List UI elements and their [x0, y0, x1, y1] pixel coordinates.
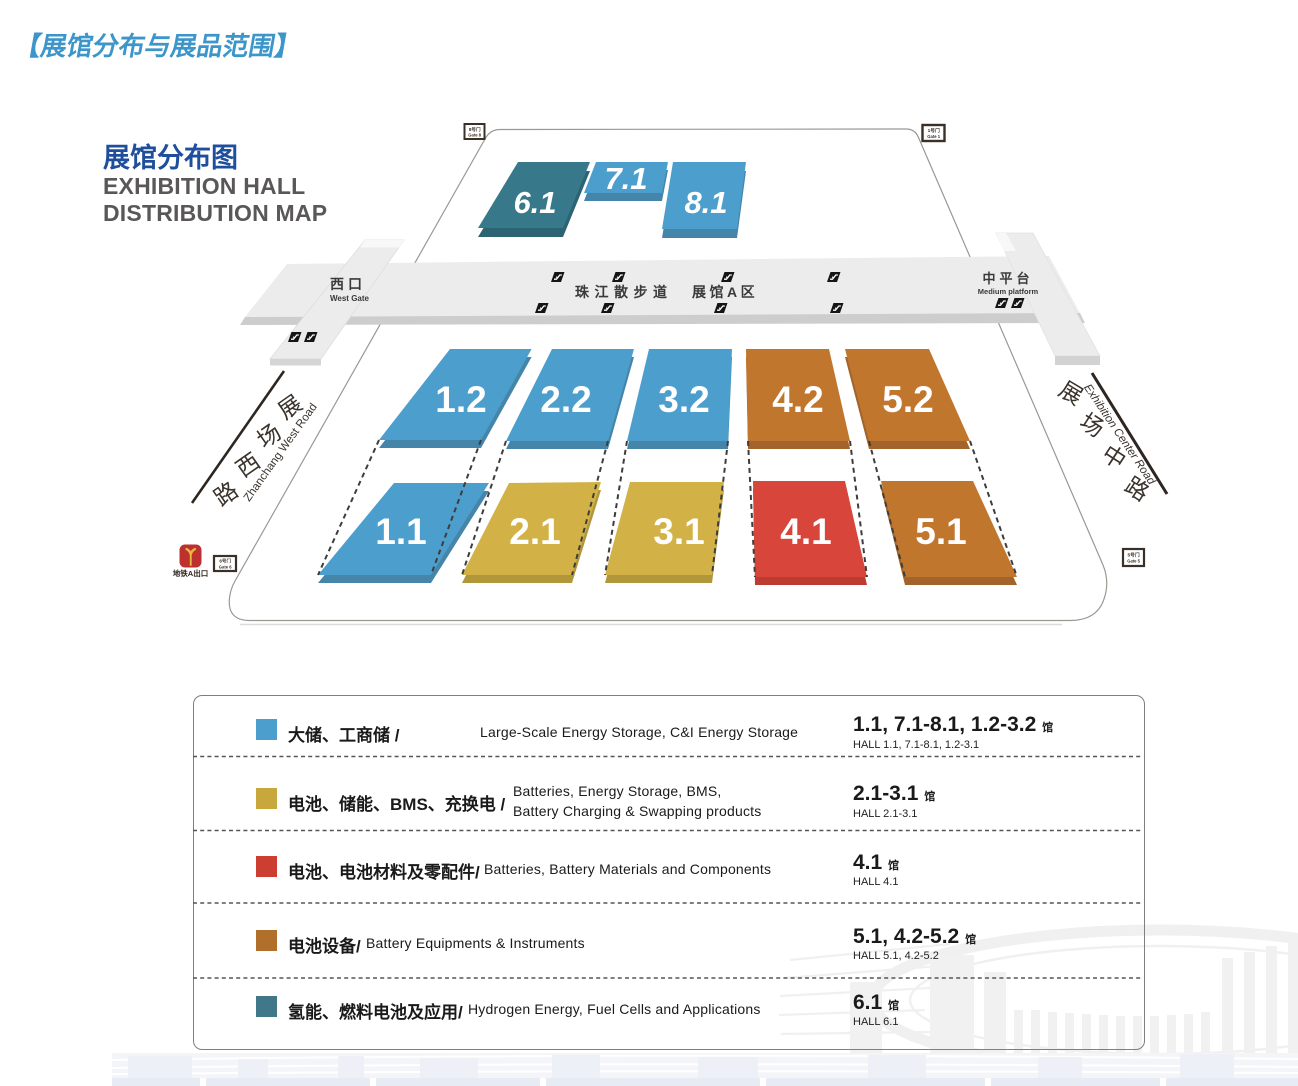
svg-text:地铁A出口: 地铁A出口: [173, 568, 208, 578]
svg-text:1.1: 1.1: [375, 511, 426, 552]
svg-text:7.1: 7.1: [604, 161, 647, 196]
svg-text:路: 路: [209, 477, 243, 511]
svg-text:1.2: 1.2: [435, 379, 486, 420]
svg-text:珠江散步道: 珠江散步道: [575, 284, 673, 300]
svg-text:西口: 西口: [330, 276, 366, 292]
svg-text:3.2: 3.2: [658, 379, 709, 420]
svg-text:6.1: 6.1: [513, 185, 556, 220]
svg-text:2.1: 2.1: [509, 511, 560, 552]
svg-text:Gate 5: Gate 5: [1127, 559, 1140, 564]
svg-text:4.2: 4.2: [772, 379, 823, 420]
svg-text:Gate 1: Gate 1: [927, 134, 940, 139]
svg-text:5.2: 5.2: [882, 379, 933, 420]
svg-text:展: 展: [1054, 376, 1087, 410]
svg-text:8.1: 8.1: [684, 185, 727, 220]
svg-text:5号门: 5号门: [1127, 552, 1139, 559]
svg-text:Gate 6: Gate 6: [219, 564, 232, 569]
svg-text:中平台: 中平台: [982, 271, 1033, 286]
svg-text:West Gate: West Gate: [330, 294, 370, 303]
svg-text:3.1: 3.1: [653, 511, 704, 552]
svg-text:5.1: 5.1: [915, 511, 966, 552]
svg-text:Medium platform: Medium platform: [978, 287, 1039, 296]
svg-text:1号门: 1号门: [928, 127, 940, 134]
svg-text:Gate 8: Gate 8: [468, 133, 481, 138]
svg-text:展馆A区: 展馆A区: [692, 284, 758, 300]
svg-text:2.2: 2.2: [540, 379, 591, 420]
svg-text:4.1: 4.1: [780, 511, 831, 552]
